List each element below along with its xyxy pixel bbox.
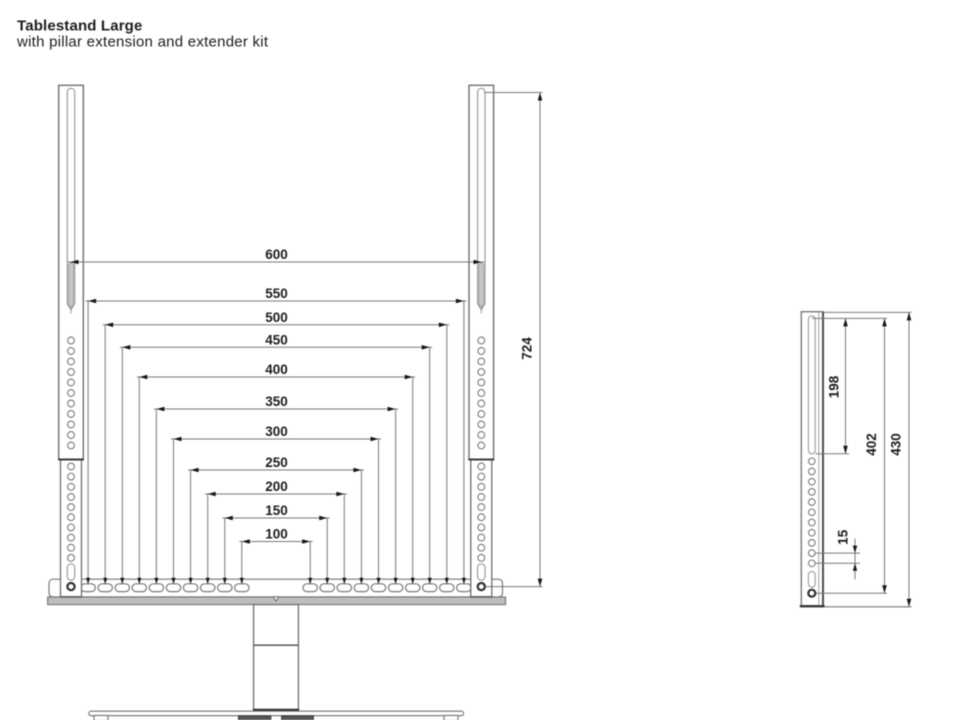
svg-text:450: 450	[265, 332, 288, 347]
svg-text:250: 250	[265, 455, 288, 470]
svg-text:430: 430	[889, 433, 904, 456]
svg-text:300: 300	[265, 424, 288, 439]
svg-text:198: 198	[826, 375, 841, 398]
svg-text:500: 500	[265, 310, 288, 325]
svg-text:200: 200	[265, 479, 288, 494]
svg-text:150: 150	[265, 503, 288, 518]
svg-text:350: 350	[265, 394, 288, 409]
svg-text:15: 15	[836, 529, 851, 545]
svg-text:402: 402	[864, 433, 879, 456]
svg-text:600: 600	[265, 247, 288, 262]
svg-text:550: 550	[265, 286, 288, 301]
svg-text:Tablestand Large: Tablestand Large	[17, 18, 142, 35]
svg-text:100: 100	[265, 527, 288, 542]
svg-text:400: 400	[265, 362, 288, 377]
svg-text:724: 724	[520, 337, 535, 360]
svg-text:with pillar extension and exte: with pillar extension and extender kit	[16, 34, 269, 51]
